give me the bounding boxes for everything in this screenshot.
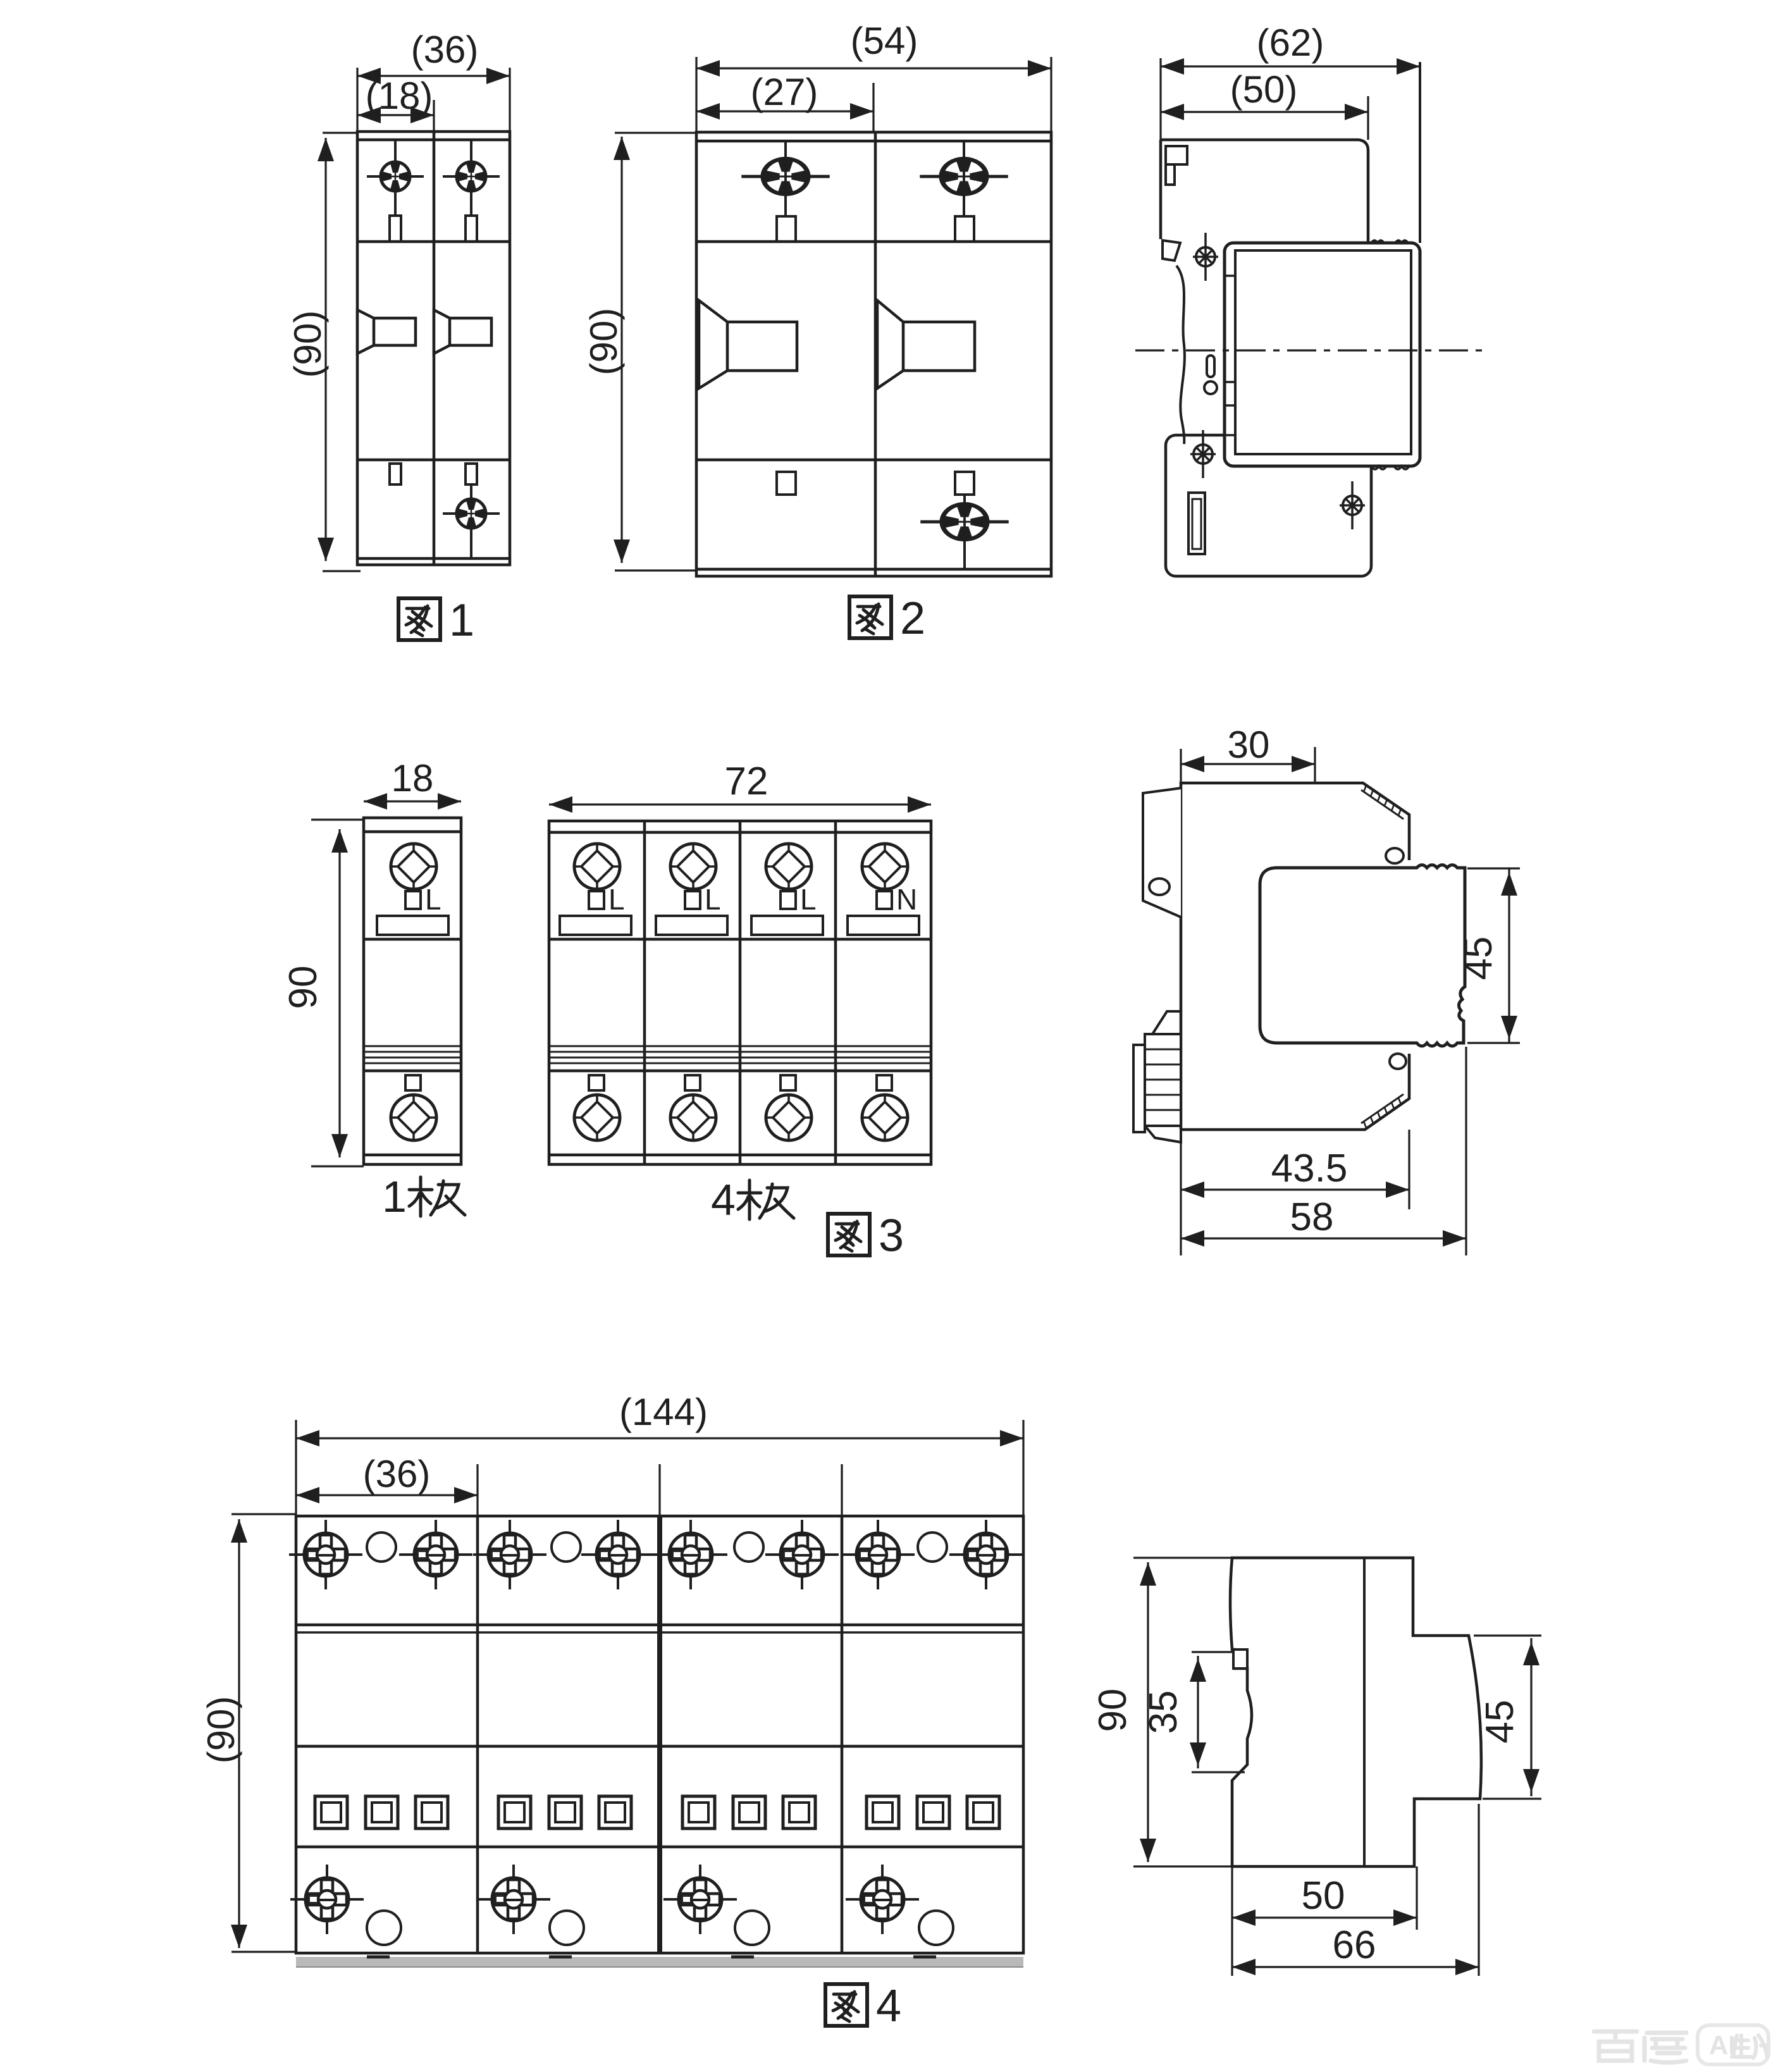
svg-text:(90): (90) [583, 308, 625, 376]
svg-text:(144): (144) [619, 1391, 708, 1433]
svg-text:45: 45 [1457, 937, 1500, 980]
svg-text:66: 66 [1333, 1923, 1376, 1967]
svg-text:(27): (27) [751, 71, 818, 113]
svg-text:(90): (90) [200, 1696, 242, 1764]
svg-text:(62): (62) [1257, 22, 1324, 64]
svg-text:N: N [896, 883, 917, 916]
svg-text:1: 1 [382, 1172, 407, 1221]
svg-text:L: L [800, 883, 817, 916]
svg-text:(36): (36) [411, 28, 479, 71]
svg-text:(54): (54) [851, 20, 918, 62]
svg-text:4: 4 [876, 1981, 901, 2032]
svg-text:90: 90 [1091, 1689, 1135, 1732]
svg-text:(18): (18) [366, 75, 433, 117]
svg-text:18: 18 [392, 757, 434, 799]
svg-text:90: 90 [281, 966, 325, 1009]
svg-text:(36): (36) [363, 1453, 431, 1495]
svg-text:72: 72 [725, 760, 768, 803]
svg-text:(90): (90) [287, 311, 329, 378]
svg-text:35: 35 [1142, 1691, 1185, 1734]
svg-text:4: 4 [711, 1175, 736, 1224]
svg-text:43.5: 43.5 [1271, 1147, 1348, 1190]
svg-text:(50): (50) [1230, 68, 1298, 111]
svg-text:3: 3 [879, 1211, 904, 1261]
svg-text:58: 58 [1290, 1195, 1334, 1239]
svg-text:L: L [425, 883, 441, 916]
svg-text:30: 30 [1228, 724, 1270, 766]
svg-text:1: 1 [449, 595, 474, 646]
svg-text:L: L [608, 883, 625, 916]
svg-text:2: 2 [900, 593, 925, 644]
svg-text:45: 45 [1478, 1700, 1522, 1744]
svg-text:50: 50 [1302, 1874, 1345, 1918]
svg-text:L: L [705, 883, 721, 916]
